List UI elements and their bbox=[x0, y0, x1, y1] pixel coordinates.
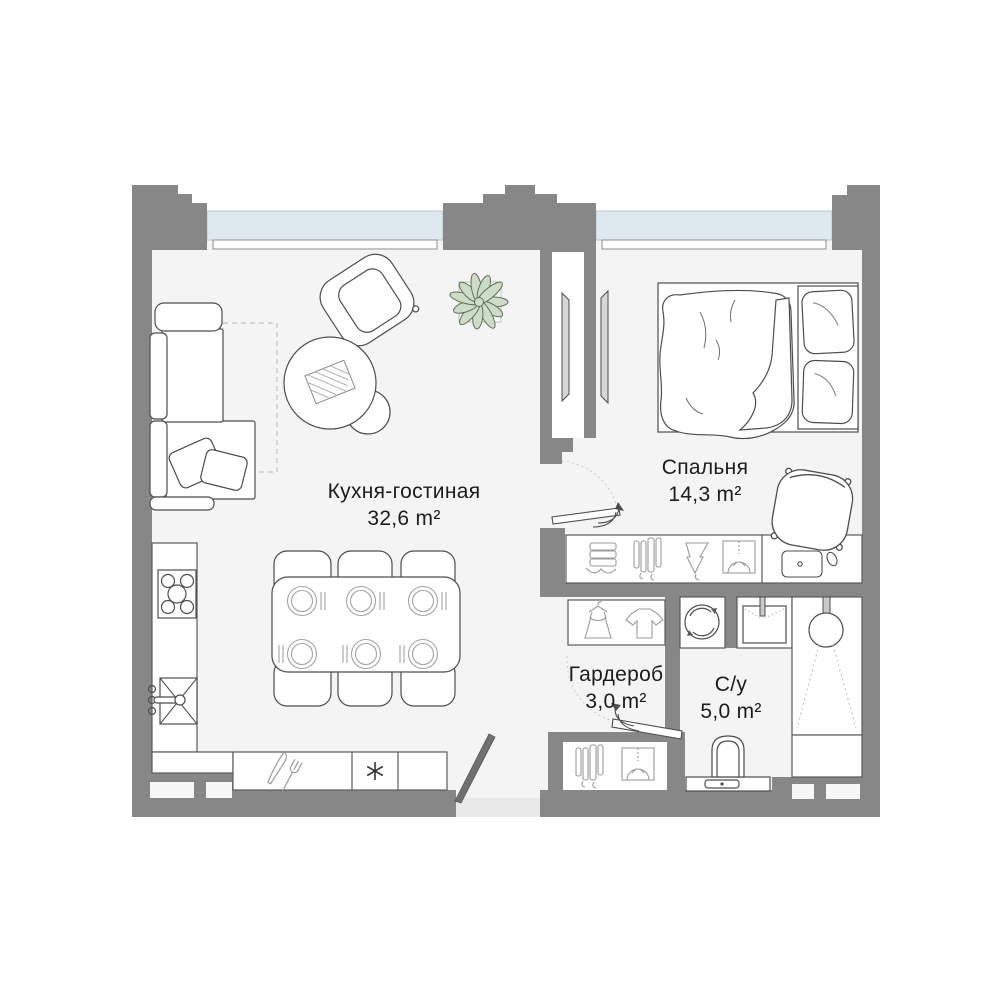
dining-set bbox=[272, 551, 460, 706]
bathroom-sink-icon bbox=[737, 597, 792, 648]
washing-machine-icon bbox=[680, 597, 725, 648]
shower-head-icon bbox=[809, 613, 843, 647]
room-area: 5,0 m² bbox=[700, 698, 761, 725]
room-area: 3,0 m² bbox=[569, 688, 664, 715]
floorplan: Кухня-гостиная 32,6 m² Спальня 14,3 m² Г… bbox=[0, 0, 1000, 1000]
room-name: Кухня-гостиная bbox=[328, 478, 481, 505]
room-area: 14,3 m² bbox=[662, 481, 748, 508]
floorplan-canvas bbox=[0, 0, 1000, 1000]
room-name: С/у bbox=[700, 671, 761, 698]
room-label-bathroom: С/у 5,0 m² bbox=[700, 671, 761, 725]
desk-chair bbox=[768, 466, 856, 554]
bed bbox=[658, 283, 858, 439]
tv-bedroom-icon bbox=[601, 291, 608, 403]
hob-icon bbox=[158, 570, 196, 618]
window-right bbox=[596, 211, 832, 249]
room-label-wardrobe: Гардероб 3,0 m² bbox=[569, 661, 664, 715]
wardrobe-bottom-closet bbox=[563, 742, 667, 790]
wardrobe-top-closet bbox=[568, 600, 665, 645]
coffee-table bbox=[284, 337, 376, 429]
room-label-bedroom: Спальня 14,3 m² bbox=[662, 454, 748, 508]
tv-living-icon bbox=[562, 293, 569, 401]
shower bbox=[792, 597, 862, 777]
room-area: 32,6 m² bbox=[328, 505, 481, 532]
room-label-kitchen-living: Кухня-гостиная 32,6 m² bbox=[328, 478, 481, 532]
room-name: Спальня bbox=[662, 454, 748, 481]
entrance-threshold bbox=[456, 798, 540, 817]
room-name: Гардероб bbox=[569, 661, 664, 688]
window-left bbox=[207, 211, 443, 249]
entrance-opening bbox=[456, 790, 540, 798]
